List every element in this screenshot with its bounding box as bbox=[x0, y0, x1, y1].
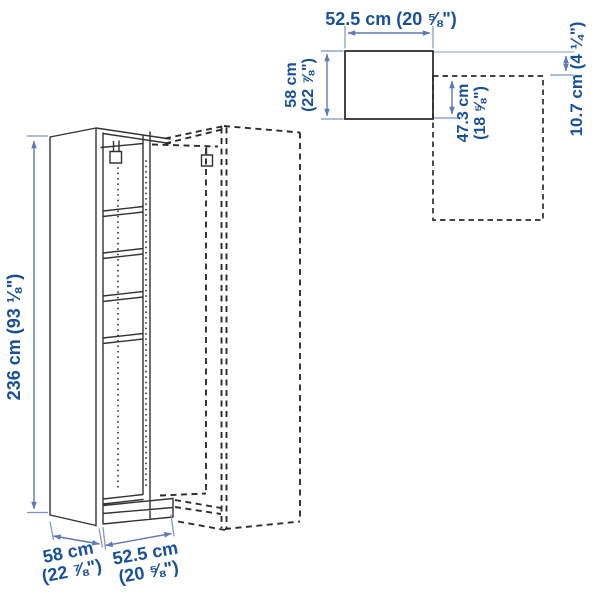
top-view-interior-depth-label: 47.3 cm (18 ⅝") bbox=[455, 68, 491, 158]
wardrobe-frame-lines bbox=[50, 128, 173, 526]
top-view-interior-depth-label-line2: (18 ⅝") bbox=[472, 68, 489, 158]
top-view-depth-label-line2: (22 ⅞") bbox=[300, 40, 317, 130]
dashed-frame-lines bbox=[152, 126, 300, 530]
top-view-width-label: 52.5 cm (20 ⅝") bbox=[281, 10, 501, 32]
tick bbox=[171, 515, 174, 537]
front-view-height-label: 236 cm (93 ⅛") bbox=[5, 227, 27, 447]
adjacent-frame-dashed-art bbox=[152, 126, 300, 530]
top-view-art bbox=[345, 51, 543, 220]
top-view-offset-label: 10.7 cm (4 ¼") bbox=[567, 4, 587, 154]
product-dimension-diagram: 52.5 cm (20 ⅝") 236 cm (93 ⅛") 58 cm (22… bbox=[0, 0, 600, 600]
shelf-peg-bracket-icon bbox=[110, 141, 122, 163]
top-view-unit-rect bbox=[345, 51, 433, 119]
door-peg-bracket-icon bbox=[202, 148, 213, 167]
top-view-interior-depth-label-line1: 47.3 cm bbox=[455, 68, 472, 158]
top-view-depth-label-line1: 58 cm bbox=[283, 40, 300, 130]
tick bbox=[50, 522, 54, 541]
wardrobe-frame-art bbox=[50, 128, 173, 526]
top-view-depth-label: 58 cm (22 ⅞") bbox=[283, 40, 319, 130]
